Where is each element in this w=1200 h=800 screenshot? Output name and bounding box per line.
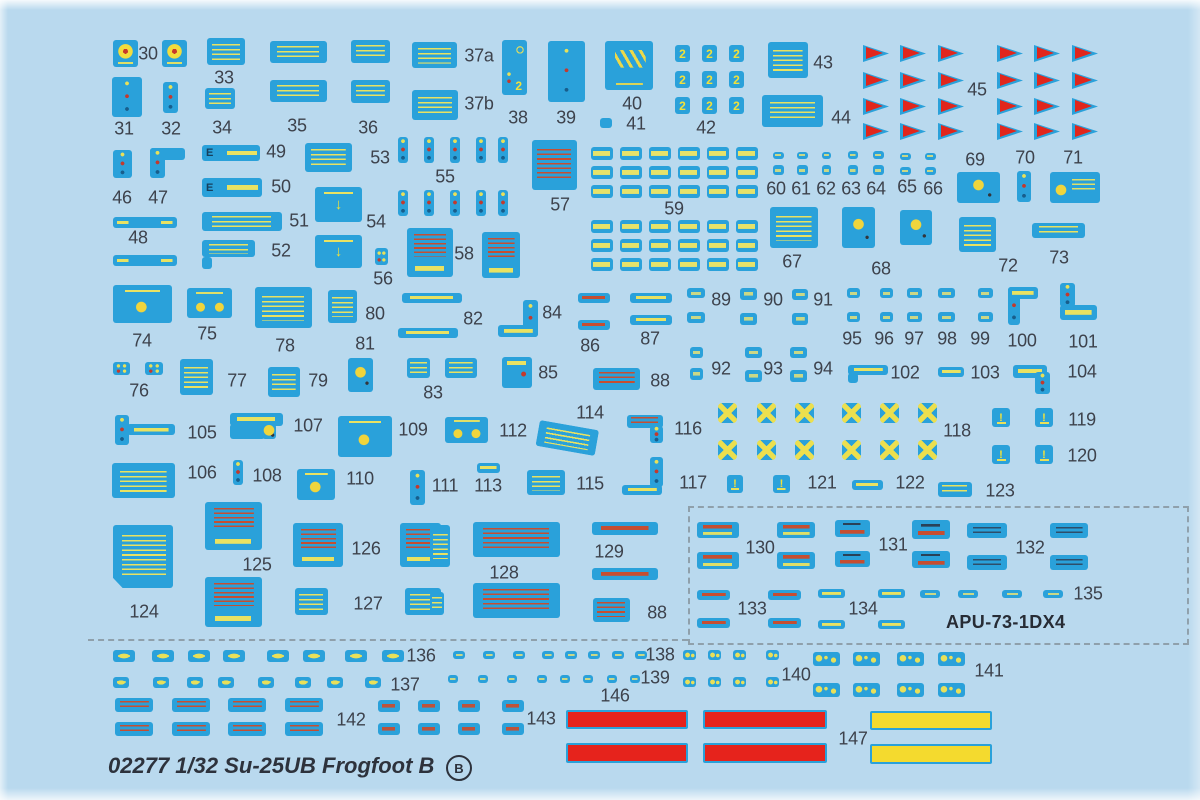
decal-shape: 2 xyxy=(702,97,717,114)
decal-shape xyxy=(938,367,964,377)
decal-shape xyxy=(813,683,840,697)
decal-number-87: 87 xyxy=(640,329,659,350)
decal-number-97: 97 xyxy=(904,329,923,350)
decal-shape xyxy=(697,590,730,600)
decal-number-83: 83 xyxy=(423,383,442,404)
decal-number-51: 51 xyxy=(289,211,308,232)
decal-shape xyxy=(687,288,705,298)
decal-shape xyxy=(566,710,688,729)
decal-number-56: 56 xyxy=(373,269,392,290)
decal-shape xyxy=(351,80,390,103)
decal-shape xyxy=(678,147,700,160)
decal-shape xyxy=(900,153,911,160)
decal-shape xyxy=(707,258,729,271)
decal-shape xyxy=(649,147,671,160)
decal-shape xyxy=(847,288,860,298)
decal-number-72: 72 xyxy=(998,256,1017,277)
decal-number-127: 127 xyxy=(353,594,382,615)
decal-shape: ! xyxy=(727,475,743,493)
decal-number-96: 96 xyxy=(874,329,893,350)
decal-number-42: 42 xyxy=(696,118,715,139)
circled-b-badge: B xyxy=(446,755,472,781)
decal-shape xyxy=(532,140,577,190)
decal-shape xyxy=(112,77,142,117)
decal-shape xyxy=(620,185,642,198)
decal-shape xyxy=(453,651,465,659)
decal-shape xyxy=(407,228,453,277)
decal-number-141: 141 xyxy=(974,661,1003,682)
decal-shape xyxy=(450,137,460,163)
decal-shape xyxy=(897,652,924,666)
decal-shape xyxy=(430,525,450,567)
decal-number-43: 43 xyxy=(813,53,832,74)
decal-shape xyxy=(842,403,861,423)
decal-shape xyxy=(842,440,861,460)
decal-shape xyxy=(230,424,265,439)
decal-number-76: 76 xyxy=(129,381,148,402)
decal-number-119: 119 xyxy=(1068,410,1096,431)
decal-number-44: 44 xyxy=(831,108,850,129)
decal-number-122: 122 xyxy=(895,473,924,494)
decal-shape xyxy=(766,650,779,660)
decal-shape xyxy=(478,675,488,683)
decal-shape xyxy=(997,45,1023,62)
decal-shape xyxy=(863,123,889,140)
decal-shape xyxy=(202,257,212,269)
decal-shape xyxy=(938,288,955,298)
decal-shape xyxy=(678,166,700,179)
decal-shape xyxy=(1050,172,1100,203)
decal-shape xyxy=(398,328,458,338)
decal-shape xyxy=(205,88,235,109)
decal-shape xyxy=(583,675,593,683)
decal-shape xyxy=(907,312,922,322)
decal-shape xyxy=(1060,283,1075,307)
decal-shape xyxy=(863,45,889,62)
decal-number-30: 30 xyxy=(138,44,157,65)
decal-number-71: 71 xyxy=(1063,148,1082,169)
decal-shape xyxy=(1017,171,1031,202)
decal-shape xyxy=(1050,555,1088,570)
decal-shape: 2 xyxy=(675,71,690,88)
decal-shape xyxy=(736,166,758,179)
decal-shape xyxy=(822,165,831,175)
decal-shape xyxy=(835,520,870,537)
decal-shape xyxy=(305,143,352,172)
decal-shape xyxy=(907,288,922,298)
decal-shape xyxy=(707,220,729,233)
decal-number-66: 66 xyxy=(923,179,942,200)
decal-shape xyxy=(842,207,875,248)
decal-shape xyxy=(113,362,130,375)
decal-shape xyxy=(172,698,210,712)
decal-shape xyxy=(938,98,964,115)
decal-number-79: 79 xyxy=(308,371,327,392)
decal-number-32: 32 xyxy=(161,119,180,140)
decal-number-47: 47 xyxy=(148,188,167,209)
decal-shape xyxy=(445,358,477,378)
decal-shape xyxy=(378,700,400,712)
decal-shape xyxy=(622,485,662,495)
decal-number-60: 60 xyxy=(766,179,785,200)
decal-shape xyxy=(262,424,276,439)
decal-number-86: 86 xyxy=(580,336,599,357)
decal-shape xyxy=(1008,287,1038,299)
decal-shape xyxy=(848,165,858,175)
decal-shape xyxy=(1072,123,1098,140)
decal-shape xyxy=(912,551,950,568)
sheet-title: 02277 1/32 Su-25UB Frogfoot B xyxy=(108,753,434,779)
decal-shape xyxy=(863,98,889,115)
decal-shape xyxy=(1034,45,1060,62)
decal-shape xyxy=(605,41,653,90)
decal-shape xyxy=(365,677,381,688)
decal-number-135: 135 xyxy=(1073,584,1102,605)
decal-number-40: 40 xyxy=(622,94,641,115)
decal-shape xyxy=(822,152,831,159)
decal-number-128: 128 xyxy=(489,563,518,584)
decal-number-142: 142 xyxy=(336,710,365,731)
decal-number-124: 124 xyxy=(129,602,158,623)
decal-shape xyxy=(900,167,911,175)
decal-number-45: 45 xyxy=(967,80,986,101)
decal-shape xyxy=(188,650,210,662)
decal-sheet: APU-73-1DX4 02277 1/32 Su-25UB Frogfoot … xyxy=(0,0,1200,800)
decal-shape xyxy=(707,185,729,198)
decal-shape xyxy=(718,403,737,423)
decal-shape xyxy=(678,185,700,198)
decal-shape xyxy=(920,590,940,598)
decal-shape xyxy=(740,288,757,300)
decal-shape: 2 xyxy=(675,45,690,62)
decal-number-94: 94 xyxy=(813,359,832,380)
decal-shape xyxy=(548,41,585,102)
decal-shape xyxy=(127,424,175,435)
decal-shape xyxy=(707,147,729,160)
decal-shape: ! xyxy=(992,408,1010,427)
decal-shape xyxy=(410,470,425,505)
decal-shape xyxy=(458,700,480,712)
decal-shape xyxy=(938,45,964,62)
decal-shape xyxy=(773,165,784,175)
decal-shape xyxy=(205,502,262,550)
decal-shape xyxy=(925,153,936,160)
decal-number-77: 77 xyxy=(227,371,246,392)
decal-shape xyxy=(593,598,630,622)
decal-shape xyxy=(382,650,404,662)
decal-shape xyxy=(407,358,430,378)
decal-shape xyxy=(202,212,282,231)
decal-number-70: 70 xyxy=(1015,148,1034,169)
decal-number-138: 138 xyxy=(645,645,674,666)
decal-shape xyxy=(978,312,993,322)
decal-shape xyxy=(612,651,624,659)
decal-number-48: 48 xyxy=(128,228,147,249)
decal-shape xyxy=(113,150,132,178)
decal-shape xyxy=(967,555,1007,570)
decal-shape xyxy=(258,677,274,688)
decal-shape xyxy=(745,370,762,382)
decal-shape xyxy=(482,232,520,278)
decal-shape xyxy=(1034,72,1060,89)
decal-number-113: 113 xyxy=(474,476,502,497)
decal-number-125: 125 xyxy=(242,555,271,576)
decal-shape xyxy=(757,440,776,460)
decal-shape xyxy=(187,288,232,318)
decal-shape xyxy=(328,290,357,323)
decal-shape xyxy=(708,677,721,687)
decal-number-120: 120 xyxy=(1067,446,1096,467)
decal-number-129: 129 xyxy=(594,542,623,563)
decal-shape xyxy=(733,677,746,687)
decal-number-104: 104 xyxy=(1067,362,1096,383)
decal-shape: ! xyxy=(773,475,790,493)
decal-shape xyxy=(853,683,880,697)
decal-number-61: 61 xyxy=(791,179,810,200)
decal-shape xyxy=(424,190,434,216)
decal-shape xyxy=(1060,305,1097,320)
decal-number-34: 34 xyxy=(212,118,231,139)
decal-shape xyxy=(630,675,640,683)
decal-shape xyxy=(790,347,807,358)
decal-shape xyxy=(1034,98,1060,115)
decal-shape xyxy=(880,312,893,322)
apu-section-label: APU-73-1DX4 xyxy=(946,612,1065,633)
decal-shape xyxy=(703,710,827,729)
decal-number-49: 49 xyxy=(266,142,285,163)
decal-number-140: 140 xyxy=(781,665,810,686)
decal-shape xyxy=(1043,590,1063,598)
decal-shape xyxy=(338,416,392,457)
decal-shape xyxy=(870,744,992,764)
decal-number-63: 63 xyxy=(841,179,860,200)
decal-shape xyxy=(818,589,845,598)
decal-number-89: 89 xyxy=(711,290,730,311)
decal-shape xyxy=(683,677,696,687)
decal-shape xyxy=(270,80,327,102)
decal-shape xyxy=(790,370,807,382)
decal-number-53: 53 xyxy=(370,148,389,169)
decal-shape xyxy=(218,677,234,688)
decal-shape xyxy=(430,592,444,615)
decal-shape xyxy=(418,723,440,735)
decal-shape xyxy=(1035,372,1050,394)
decal-number-118: 118 xyxy=(943,421,971,442)
decal-number-123: 123 xyxy=(985,481,1014,502)
decal-shape xyxy=(649,185,671,198)
decal-shape xyxy=(762,95,823,127)
decal-number-95: 95 xyxy=(842,329,861,350)
decal-shape xyxy=(959,217,996,252)
decal-shape xyxy=(703,743,827,763)
decal-number-108: 108 xyxy=(252,466,281,487)
decal-number-82: 82 xyxy=(463,309,482,330)
decal-shape xyxy=(683,650,696,660)
decal-shape xyxy=(773,152,784,159)
decal-shape xyxy=(768,42,808,78)
decal-shape xyxy=(740,313,757,325)
decal-shape xyxy=(938,652,965,666)
decal-number-105: 105 xyxy=(187,423,216,444)
decal-shape xyxy=(113,40,138,67)
decal-shape xyxy=(777,522,815,538)
decal-number-41: 41 xyxy=(626,114,645,135)
decal-shape xyxy=(542,651,554,659)
decal-number-46: 46 xyxy=(112,188,131,209)
decal-shape xyxy=(498,137,508,163)
decal-shape: ↓ xyxy=(315,187,362,222)
decal-shape xyxy=(445,417,488,443)
decal-shape xyxy=(591,185,613,198)
decal-shape xyxy=(880,288,893,298)
decal-shape xyxy=(592,522,658,535)
decal-shape xyxy=(228,722,266,736)
decal-shape xyxy=(607,675,617,683)
decal-shape xyxy=(900,72,926,89)
decal-shape xyxy=(777,552,815,569)
decal-shape xyxy=(678,239,700,252)
decal-shape xyxy=(450,190,460,216)
decal-shape xyxy=(938,482,972,497)
decal-shape xyxy=(303,650,325,662)
decal-number-106: 106 xyxy=(187,463,216,484)
decal-shape xyxy=(997,98,1023,115)
decal-shape xyxy=(900,45,926,62)
decal-shape xyxy=(476,137,486,163)
decal-number-131: 131 xyxy=(878,535,907,556)
decal-shape xyxy=(483,651,495,659)
decal-shape: 2 xyxy=(702,71,717,88)
decal-shape xyxy=(918,403,937,423)
decal-shape xyxy=(925,167,936,175)
decal-shape xyxy=(424,137,434,163)
decal-shape: 2 xyxy=(729,97,744,114)
decal-shape xyxy=(1072,72,1098,89)
decal-shape xyxy=(649,258,671,271)
decal-number-146: 146 xyxy=(600,686,629,707)
decal-shape xyxy=(560,675,570,683)
decal-shape xyxy=(620,258,642,271)
decal-shape: 2 xyxy=(729,45,744,62)
decal-shape: 2 xyxy=(702,45,717,62)
decal-shape xyxy=(768,590,801,600)
decal-shape xyxy=(113,525,173,588)
decal-number-132: 132 xyxy=(1015,538,1044,559)
decal-number-37b: 37b xyxy=(464,94,493,115)
decal-shape xyxy=(115,722,153,736)
decal-shape xyxy=(187,677,203,688)
decal-shape xyxy=(770,207,818,248)
decal-number-147: 147 xyxy=(838,729,867,750)
decal-shape xyxy=(900,210,932,245)
decal-shape xyxy=(718,440,737,460)
bottom-left-dashed-cut-line xyxy=(88,639,688,641)
decal-shape xyxy=(270,41,327,63)
decal-shape xyxy=(375,248,388,265)
decal-shape xyxy=(345,650,367,662)
decal-shape xyxy=(768,618,801,628)
decal-shape xyxy=(295,588,328,615)
decal-shape xyxy=(600,118,612,128)
decal-shape xyxy=(873,151,884,159)
decal-shape xyxy=(1072,45,1098,62)
decal-shape xyxy=(113,650,135,662)
decal-shape xyxy=(620,239,642,252)
decal-shape xyxy=(153,677,169,688)
decal-number-58: 58 xyxy=(454,244,473,265)
decal-shape xyxy=(473,583,560,618)
decal-shape xyxy=(745,347,762,358)
decal-shape xyxy=(565,651,577,659)
decal-number-100: 100 xyxy=(1007,331,1036,352)
decal-shape xyxy=(152,650,174,662)
decal-shape xyxy=(818,620,845,629)
decal-shape xyxy=(967,523,1007,538)
decal-number-134: 134 xyxy=(848,599,877,620)
decal-shape xyxy=(620,147,642,160)
decal-number-98: 98 xyxy=(937,329,956,350)
decal-shape xyxy=(797,165,808,175)
decal-shape xyxy=(591,239,613,252)
decal-number-103: 103 xyxy=(970,363,999,384)
decal-number-107: 107 xyxy=(293,416,322,437)
decal-number-59: 59 xyxy=(664,199,683,220)
decal-number-31: 31 xyxy=(114,119,133,140)
decal-shape xyxy=(476,190,486,216)
decal-shape xyxy=(852,480,883,490)
decal-number-65: 65 xyxy=(897,177,916,198)
decal-shape xyxy=(938,312,955,322)
decal-shape xyxy=(873,165,884,175)
decal-shape: 2 xyxy=(502,40,527,95)
decal-shape xyxy=(402,293,462,303)
decal-shape xyxy=(649,239,671,252)
decal-number-136: 136 xyxy=(406,646,435,667)
decal-shape xyxy=(870,711,992,730)
decal-number-115: 115 xyxy=(576,474,604,495)
decal-shape xyxy=(527,470,565,495)
decal-shape xyxy=(498,325,538,337)
decal-shape xyxy=(113,285,172,323)
decal-shape xyxy=(507,675,517,683)
decal-shape xyxy=(853,652,880,666)
decal-shape xyxy=(1034,123,1060,140)
decal-shape xyxy=(267,650,289,662)
decal-shape xyxy=(878,620,905,629)
decal-shape xyxy=(766,677,779,687)
decal-shape xyxy=(448,675,458,683)
decal-shape xyxy=(733,650,746,660)
decal-shape xyxy=(578,320,610,330)
decal-shape xyxy=(690,368,703,380)
decal-number-91: 91 xyxy=(813,290,832,311)
decal-number-88: 88 xyxy=(647,603,666,624)
decal-shape xyxy=(736,220,758,233)
decal-number-117: 117 xyxy=(679,473,707,494)
decal-shape xyxy=(736,147,758,160)
decal-shape: 2 xyxy=(675,97,690,114)
decal-shape xyxy=(351,40,390,63)
decal-shape xyxy=(297,469,335,500)
decal-number-64: 64 xyxy=(866,179,885,200)
decal-shape xyxy=(113,217,177,228)
decal-shape xyxy=(978,288,993,298)
decal-number-88: 88 xyxy=(650,371,669,392)
decal-shape xyxy=(162,40,187,67)
decal-shape xyxy=(172,722,210,736)
decal-number-109: 109 xyxy=(398,420,427,441)
decal-shape xyxy=(473,522,560,557)
